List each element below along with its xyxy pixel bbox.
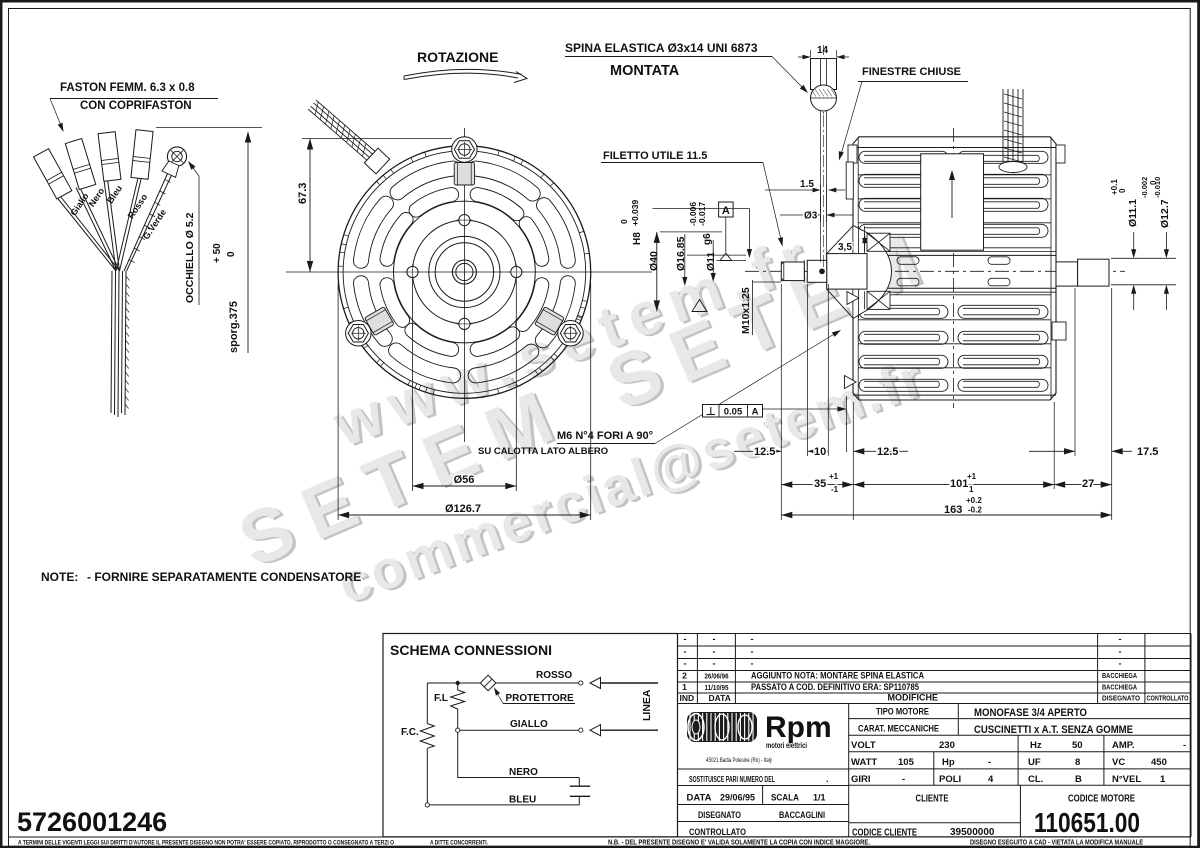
svg-text:Rpm: Rpm <box>765 711 832 744</box>
svg-text:101: 101 <box>950 478 968 490</box>
svg-text:0: 0 <box>619 219 629 224</box>
svg-text:450: 450 <box>1151 757 1167 768</box>
svg-text:UF: UF <box>1028 757 1041 768</box>
svg-text:+1: +1 <box>967 472 977 481</box>
svg-text:CARAT. MECCANICHE: CARAT. MECCANICHE <box>858 724 939 735</box>
svg-text:Ø40: Ø40 <box>648 251 660 271</box>
svg-text:-: - <box>1183 740 1186 751</box>
svg-text:DISEGNATO: DISEGNATO <box>698 810 741 821</box>
svg-text:CLIENTE: CLIENTE <box>916 794 949 805</box>
svg-text:35: 35 <box>814 478 826 490</box>
svg-text:Ø11.1: Ø11.1 <box>1127 199 1139 227</box>
svg-text:10: 10 <box>814 446 826 458</box>
svg-text:ROTAZIONE: ROTAZIONE <box>417 49 498 65</box>
svg-text:67.3: 67.3 <box>297 183 309 204</box>
svg-text:-: - <box>751 659 754 669</box>
svg-text:-0.017: -0.017 <box>697 202 707 226</box>
svg-text:GIALLO: GIALLO <box>510 719 548 730</box>
svg-text:CON COPRIFASTON: CON COPRIFASTON <box>80 100 192 112</box>
svg-text:PROTETTORE: PROTETTORE <box>506 693 574 704</box>
svg-text:CL.: CL. <box>1028 774 1043 785</box>
svg-text:OCCHIELLO Ø 5.2: OCCHIELLO Ø 5.2 <box>184 212 196 303</box>
svg-text:-: - <box>1119 647 1122 657</box>
svg-text:CONTROLLATO: CONTROLLATO <box>689 827 746 838</box>
svg-text:SCALA: SCALA <box>771 793 799 804</box>
svg-text:SU CALOTTA LATO ALBERO: SU CALOTTA LATO ALBERO <box>478 446 608 457</box>
svg-text:VC: VC <box>1112 757 1125 768</box>
svg-text:1: 1 <box>1160 774 1166 785</box>
svg-text:AMP.: AMP. <box>1112 740 1135 751</box>
svg-text:-: - <box>1119 659 1122 669</box>
svg-text:-: - <box>684 659 687 669</box>
svg-text:DISEGNATO: DISEGNATO <box>1102 696 1141 703</box>
svg-text:1.5: 1.5 <box>800 179 814 190</box>
svg-text:-: - <box>713 647 716 657</box>
svg-text:-0.2: -0.2 <box>968 506 982 515</box>
svg-text:Ø126.7: Ø126.7 <box>445 503 481 515</box>
svg-text:CODICE MOTORE: CODICE MOTORE <box>1068 794 1135 805</box>
svg-text:1/1: 1/1 <box>813 793 826 803</box>
svg-text:27: 27 <box>1082 478 1094 490</box>
svg-text:MONTATA: MONTATA <box>610 63 680 79</box>
svg-text:B: B <box>1075 774 1082 785</box>
svg-text:DATA: DATA <box>709 693 731 703</box>
svg-text:SPINA ELASTICA Ø3x14 UNI 6873: SPINA ELASTICA Ø3x14 UNI 6873 <box>565 41 758 55</box>
svg-text:A: A <box>752 407 759 418</box>
svg-text:-: - <box>751 647 754 657</box>
svg-text:3,5: 3,5 <box>838 242 852 253</box>
svg-text:FILETTO UTILE 11.5: FILETTO UTILE 11.5 <box>603 150 707 162</box>
svg-text:H8: H8 <box>632 232 643 245</box>
svg-text:MONOFASE 3/4 APERTO: MONOFASE 3/4 APERTO <box>974 707 1087 719</box>
svg-text:CONTROLLATO: CONTROLLATO <box>1147 696 1189 703</box>
svg-text:FINESTRE CHIUSE: FINESTRE CHIUSE <box>862 66 961 78</box>
svg-text:2: 2 <box>682 671 687 681</box>
svg-text:163: 163 <box>944 504 962 516</box>
svg-text:BLEU: BLEU <box>509 795 536 806</box>
svg-text:PASSATO A COD. DEFINITIVO ERA:: PASSATO A COD. DEFINITIVO ERA: SP110785 <box>751 682 919 692</box>
svg-text:14: 14 <box>817 45 829 56</box>
svg-text:A DITTE CONCORRENTI.: A DITTE CONCORRENTI. <box>430 840 488 847</box>
svg-text:BACCAGLINI: BACCAGLINI <box>779 810 825 821</box>
svg-text:110651.00: 110651.00 <box>1034 807 1140 838</box>
svg-text:NERO: NERO <box>509 767 538 778</box>
svg-text:-0.002: -0.002 <box>1140 177 1149 198</box>
svg-text:g6: g6 <box>702 233 713 245</box>
svg-text:0: 0 <box>226 251 237 257</box>
svg-text:AGGIUNTO NOTA: MONTARE SPINA E: AGGIUNTO NOTA: MONTARE SPINA ELASTICA <box>751 671 924 681</box>
svg-text:Ø3: Ø3 <box>804 211 818 222</box>
svg-text:VOLT: VOLT <box>851 740 876 751</box>
svg-text:BACCHIEGA: BACCHIEGA <box>1102 685 1137 692</box>
svg-text:+1: +1 <box>829 472 839 481</box>
svg-text:M10x1.25: M10x1.25 <box>740 287 752 334</box>
svg-text:SCHEMA CONNESSIONI: SCHEMA CONNESSIONI <box>390 642 552 658</box>
svg-text:+0.2: +0.2 <box>966 496 982 505</box>
svg-text:A: A <box>722 205 730 217</box>
svg-text:26/06/96: 26/06/96 <box>705 673 729 680</box>
svg-text:sporg.375: sporg.375 <box>228 301 240 353</box>
svg-text:A TERMINI DELLE VIGENTI LEGGI: A TERMINI DELLE VIGENTI LEGGI SUI DIRITT… <box>18 840 394 847</box>
svg-text:-: - <box>902 774 905 785</box>
svg-text:-: - <box>684 634 687 644</box>
svg-text:WATT: WATT <box>851 757 877 768</box>
svg-text:+0.039: +0.039 <box>630 199 640 226</box>
svg-text:IND: IND <box>680 693 695 703</box>
svg-text:-: - <box>751 634 754 644</box>
svg-text:1: 1 <box>682 682 687 692</box>
svg-text:-0.010: -0.010 <box>1153 177 1162 198</box>
svg-text:GIRI: GIRI <box>851 774 871 785</box>
svg-text:50: 50 <box>1072 740 1083 751</box>
svg-text:motori elettrici: motori elettrici <box>766 741 807 750</box>
svg-text:Ø12.7: Ø12.7 <box>1159 199 1171 228</box>
svg-text:Hp: Hp <box>942 757 955 768</box>
svg-text:Hz: Hz <box>1030 740 1042 751</box>
svg-text:105: 105 <box>898 757 915 768</box>
svg-text:BACCHIEGA: BACCHIEGA <box>1102 673 1137 680</box>
svg-text:45021 Badia Polesine (Ro) - It: 45021 Badia Polesine (Ro) - Italy <box>706 757 773 764</box>
svg-text:F.L: F.L <box>434 693 448 704</box>
svg-text:-: - <box>988 757 991 768</box>
svg-text:N.B. - DEL PRESENTE DISEGNO E': N.B. - DEL PRESENTE DISEGNO E' VALIDA SO… <box>608 840 870 847</box>
svg-text:17.5: 17.5 <box>1137 446 1158 458</box>
svg-text:POLI: POLI <box>939 774 961 785</box>
svg-text:4: 4 <box>988 774 994 785</box>
svg-text:-: - <box>713 659 716 669</box>
svg-text:N°VEL: N°VEL <box>1112 774 1141 785</box>
svg-text:0.05: 0.05 <box>724 407 743 418</box>
svg-text:ROSSO: ROSSO <box>536 670 572 681</box>
svg-text:DISEGNO ESEGUITO A CAD - VIETA: DISEGNO ESEGUITO A CAD - VIETATA LA MODI… <box>970 840 1143 847</box>
svg-text:8: 8 <box>1075 757 1080 768</box>
svg-text:MODIFICHE: MODIFICHE <box>888 693 939 703</box>
svg-text:5726001246: 5726001246 <box>17 807 167 837</box>
svg-text:Ø56: Ø56 <box>454 474 475 486</box>
svg-text:-1: -1 <box>831 485 839 494</box>
svg-text:CUSCINETTI x A.T. SENZA GOMME: CUSCINETTI x A.T. SENZA GOMME <box>974 724 1133 736</box>
svg-text:DATA: DATA <box>687 793 712 804</box>
svg-text:Ø11: Ø11 <box>705 252 717 271</box>
svg-text:F.C.: F.C. <box>401 727 419 738</box>
svg-text:Ø16.85: Ø16.85 <box>675 236 687 271</box>
svg-text:29/06/95: 29/06/95 <box>720 793 755 803</box>
svg-text:12.5: 12.5 <box>754 446 775 458</box>
svg-text:+ 50: + 50 <box>212 243 223 263</box>
svg-text:M6 N°4 FORI A 90°: M6 N°4 FORI A 90° <box>557 430 653 442</box>
svg-text:230: 230 <box>939 740 955 751</box>
svg-text:- FORNIRE SEPARATAMENTE CONDEN: - FORNIRE SEPARATAMENTE CONDENSATORE <box>87 570 361 584</box>
svg-text:11/10/95: 11/10/95 <box>705 685 729 692</box>
svg-text:.: . <box>826 774 829 784</box>
svg-text:-: - <box>1119 634 1122 644</box>
svg-text:0: 0 <box>1118 188 1127 193</box>
svg-text:-: - <box>684 647 687 657</box>
svg-text:TIPO MOTORE: TIPO MOTORE <box>876 707 929 718</box>
svg-text:-: - <box>713 634 716 644</box>
svg-text:NOTE:: NOTE: <box>41 570 78 584</box>
svg-text:SOSTITUISCE PARI NUMERO DEL: SOSTITUISCE PARI NUMERO DEL <box>689 775 775 784</box>
svg-text:12.5: 12.5 <box>877 446 898 458</box>
svg-text:39500000: 39500000 <box>950 827 995 838</box>
svg-text:FASTON FEMM. 6.3 x 0.8: FASTON FEMM. 6.3 x 0.8 <box>60 82 195 94</box>
svg-text:LINEA: LINEA <box>641 689 653 721</box>
svg-text:1: 1 <box>969 485 974 494</box>
